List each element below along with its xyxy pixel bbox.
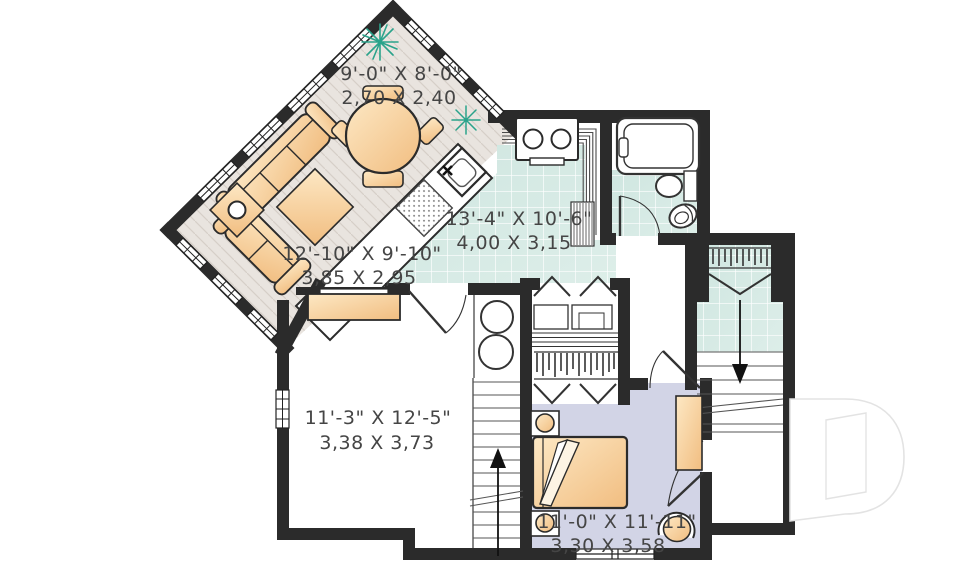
kitchen-dimensions-metric: 4,00 X 3,15: [456, 232, 571, 254]
wall-entry-closet-stub-b: [771, 245, 783, 302]
bed-icon: [533, 437, 627, 508]
wall-hall-entry-divider: [685, 245, 697, 390]
dining-dimensions-metric: 2,70 X 2,40: [341, 87, 456, 109]
wall-entry-closet-stub-a: [697, 245, 709, 302]
dining-dimensions-imperial: 9'-0" X 8'-0": [340, 63, 462, 85]
stair-break-line: [470, 491, 523, 506]
wall-closet-top-stub-b: [610, 278, 618, 290]
wall-entry-top: [697, 233, 795, 245]
living-dimensions-imperial: 12'-10" X 9'-10": [282, 243, 441, 265]
floor-plan-page: 9'-0" X 8'-0" 2,70 X 2,40 12'-10" X 9'-1…: [0, 0, 960, 569]
window-icon: [276, 390, 289, 428]
wall-bedroom-right-lower: [700, 472, 712, 548]
wall-bottom-right: [700, 523, 795, 535]
bathtub-icon: [617, 118, 699, 174]
bedroom-dimensions-metric: 3,30 X 3,58: [550, 535, 665, 557]
dresser-icon: [676, 396, 702, 470]
wall-familyroom-bottom-b: [403, 548, 532, 560]
wall-bath-left: [600, 110, 612, 245]
stairs-up-arrowhead: [490, 448, 506, 468]
washer-dryer-icon: [479, 301, 513, 369]
plant-icon: [452, 106, 480, 134]
familyroom-dimensions-metric: 3,38 X 3,73: [319, 432, 434, 454]
letter-d-watermark-icon: [790, 399, 904, 521]
wall-familyroom-left-b: [277, 428, 289, 540]
wall-bath-bottom-a: [600, 233, 616, 245]
kitchen-dimensions-imperial: 13'-4" X 10'-6": [446, 208, 593, 230]
wall-closet-top-stub-a: [532, 278, 540, 290]
wall-familyroom-left-a: [277, 300, 289, 390]
door-swing-icon: [409, 291, 466, 333]
plant-icon: [362, 24, 398, 60]
wall-bedroom-top-a: [630, 378, 648, 390]
wall-closet-right: [618, 278, 630, 405]
sideboard-icon: [308, 289, 400, 320]
stove-icon: [516, 118, 578, 165]
wall-familyroom-bottom: [277, 528, 415, 540]
nightstand-lamp-icon: [531, 411, 559, 436]
floor-plan-svg: 9'-0" X 8'-0" 2,70 X 2,40 12'-10" X 9'-1…: [0, 0, 960, 569]
familyroom-dimensions-imperial: 11'-3" X 12'-5": [305, 407, 452, 429]
living-dimensions-metric: 3,85 X 2,95: [301, 267, 416, 289]
bedroom-dimensions-imperial: 11'-0" X 11'-11": [537, 511, 696, 533]
bedroom-closet-floor: [532, 284, 618, 404]
wall-kitchen-bottom-b: [468, 283, 532, 295]
stairs-down-arrowhead: [732, 364, 748, 384]
